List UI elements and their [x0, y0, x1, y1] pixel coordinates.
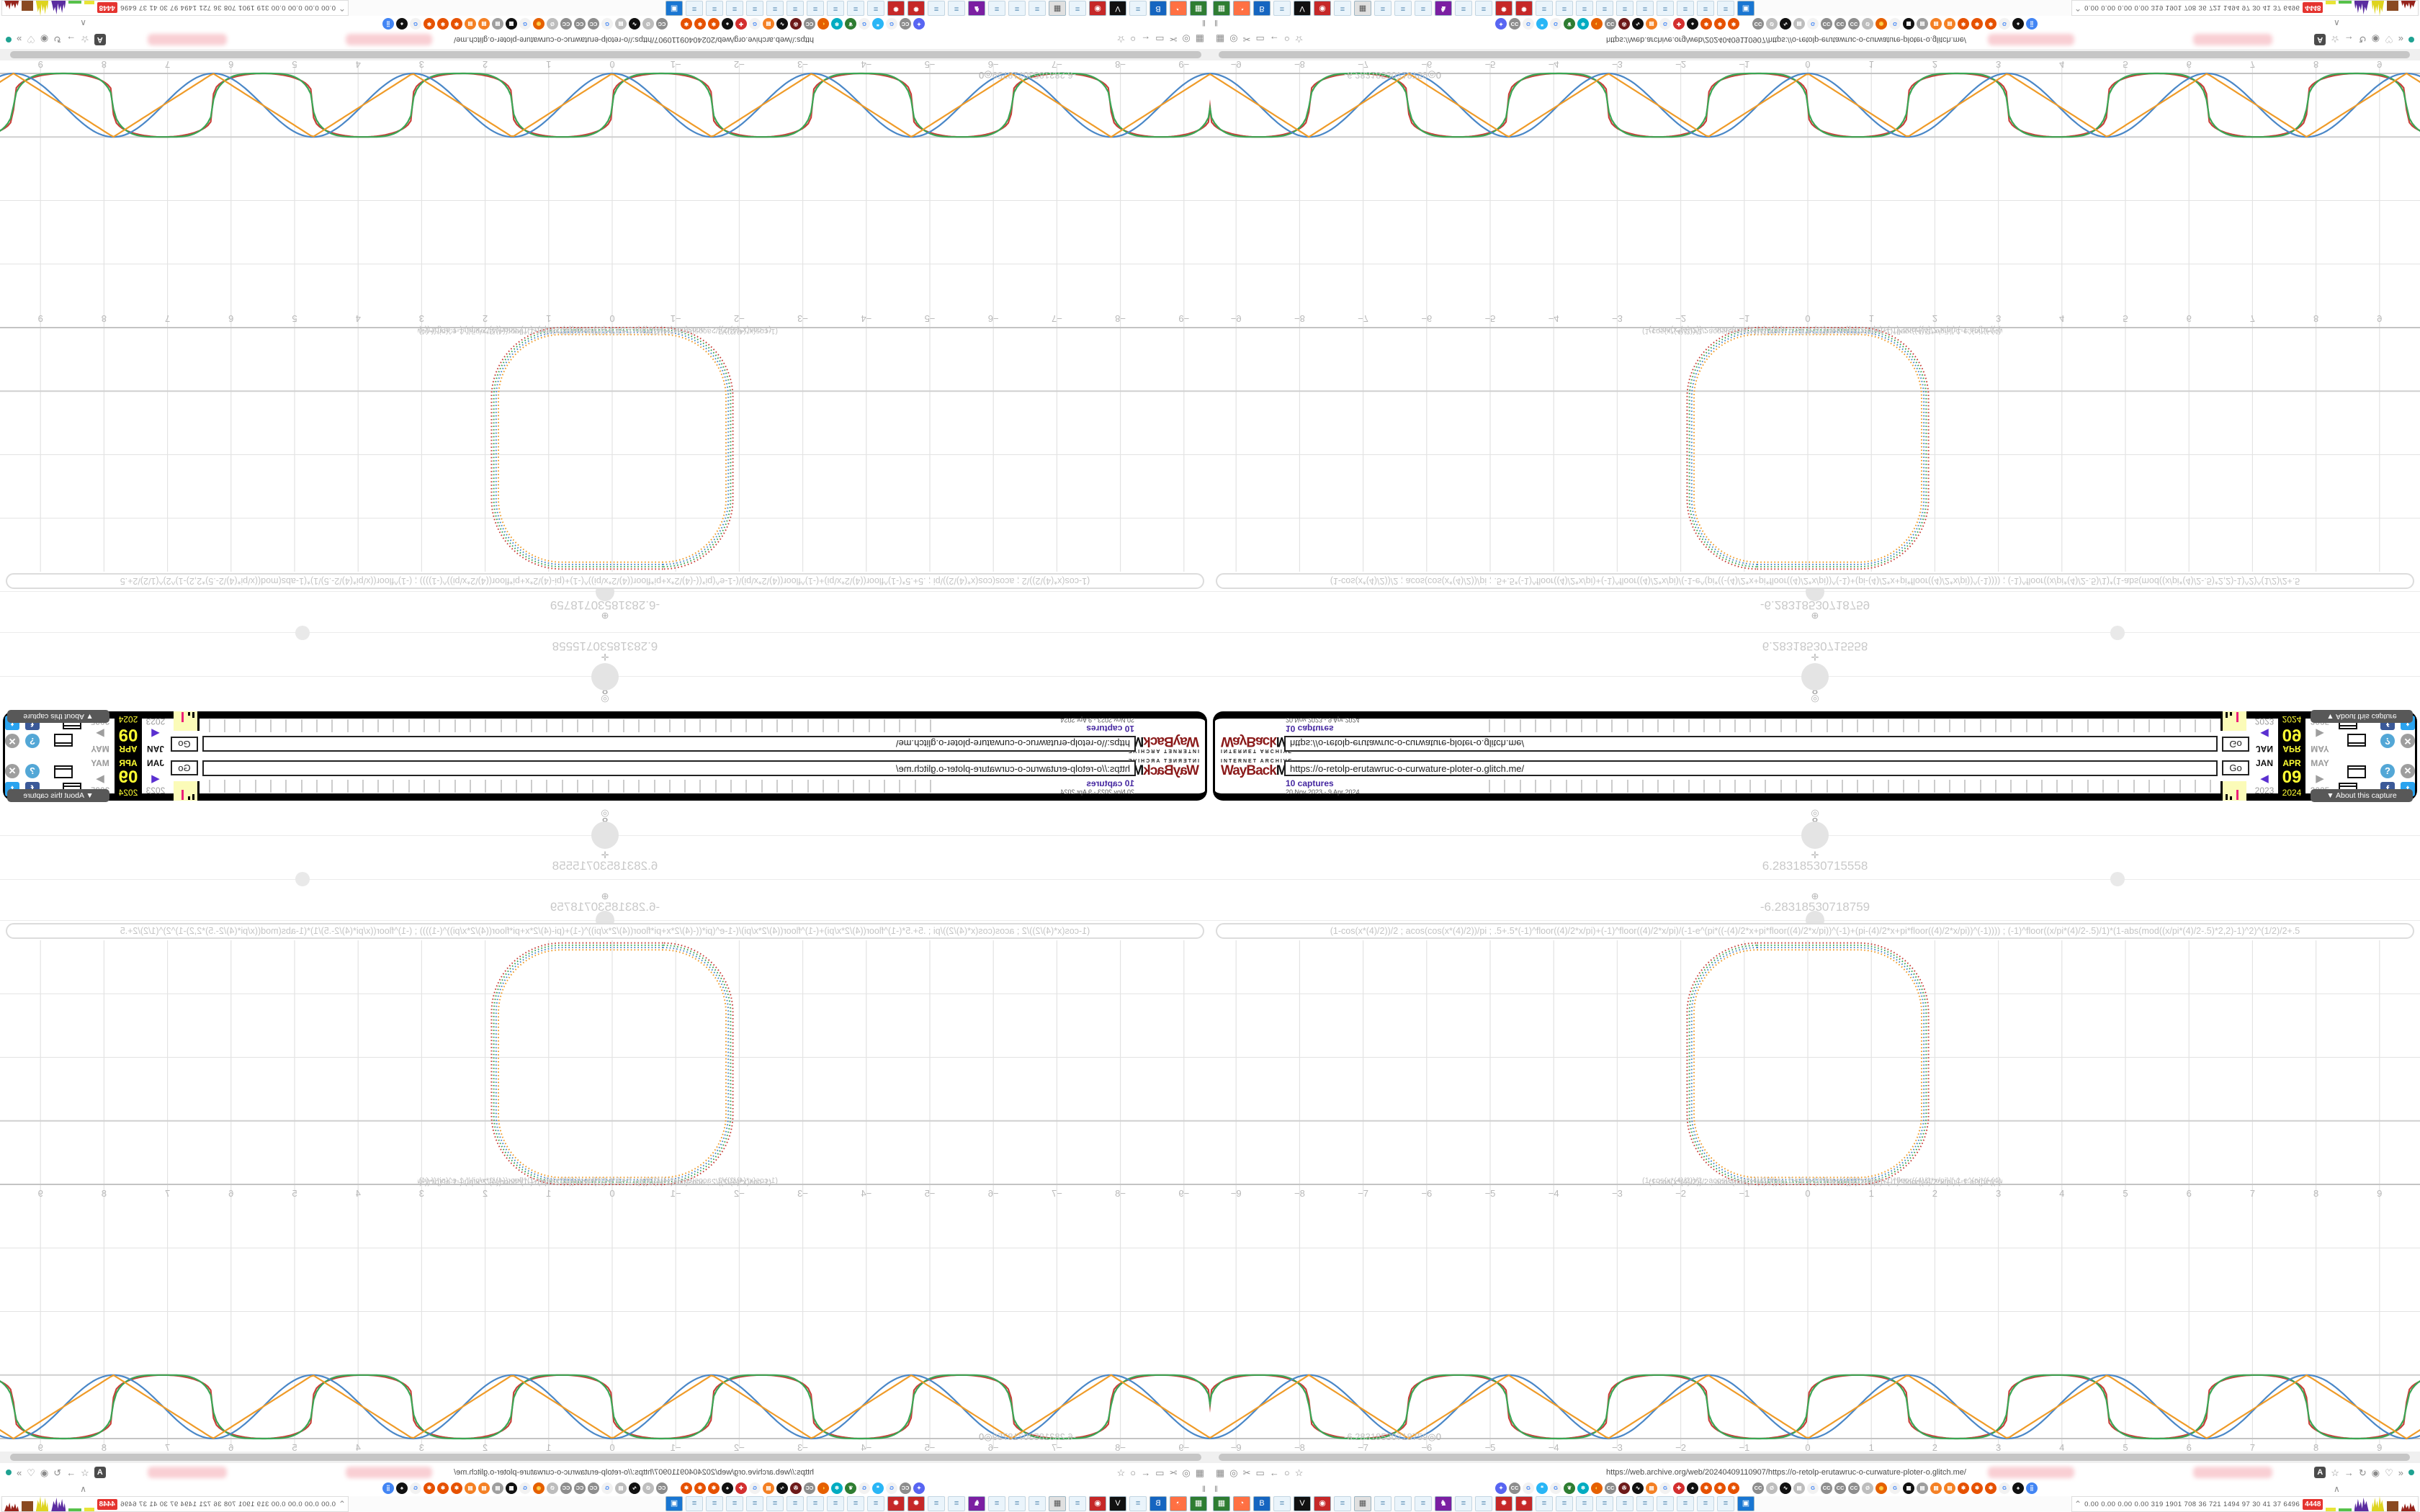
app-tab-icon[interactable]: ▣: [1737, 1496, 1754, 1511]
app-tab-icon[interactable]: ◔: [1233, 1496, 1250, 1511]
favicon[interactable]: Ø: [547, 1482, 558, 1494]
app-tab-icon[interactable]: ◉: [1089, 1496, 1106, 1511]
favicon[interactable]: ◐: [817, 18, 829, 30]
formula-input[interactable]: [1216, 573, 2414, 589]
favicon[interactable]: ◉: [533, 18, 544, 30]
notepad-tab-icon[interactable]: ≡: [1717, 1, 1734, 16]
favicon[interactable]: ❝: [872, 18, 884, 30]
notepad-tab-icon[interactable]: ≡: [726, 1, 743, 16]
app-tab-icon[interactable]: ▣: [665, 1, 683, 16]
address-bar-url[interactable]: https://web.archive.org/web/202404091109…: [454, 1468, 814, 1477]
favicon[interactable]: ♠: [2012, 18, 2024, 30]
close-icon[interactable]: ✕: [5, 764, 19, 778]
favicon[interactable]: ▤: [763, 18, 774, 30]
month-jan[interactable]: JAN: [142, 759, 169, 768]
notepad-tab-icon[interactable]: ≡: [1394, 1, 1412, 16]
favicon[interactable]: ▤: [492, 18, 503, 30]
notepad-tab-icon[interactable]: ≡: [686, 1, 703, 16]
app-tab-icon[interactable]: ✹: [907, 1496, 925, 1511]
favicon[interactable]: ∿: [1632, 1482, 1644, 1494]
notepad-tab-icon[interactable]: ≡: [928, 1, 945, 16]
notepad-tab-icon[interactable]: ≡: [807, 1, 824, 16]
app-tab-icon[interactable]: ✹: [1495, 1, 1512, 16]
favicon[interactable]: Ø: [1862, 1482, 1873, 1494]
favicon[interactable]: ❝: [1536, 1482, 1548, 1494]
favicon[interactable]: ▤: [1930, 18, 1942, 30]
address-bar-url[interactable]: https://web.archive.org/web/202404091109…: [454, 35, 814, 44]
favicon[interactable]: CC: [588, 18, 599, 30]
captures-link[interactable]: 10 captures: [1086, 778, 1134, 788]
favicon[interactable]: ▤: [1930, 1482, 1942, 1494]
app-tab-icon[interactable]: ▦: [1049, 1496, 1066, 1511]
notepad-tab-icon[interactable]: ≡: [726, 1496, 743, 1511]
prev-capture-arrow[interactable]: ◀: [142, 773, 169, 784]
panel-resize-knob[interactable]: [591, 663, 619, 690]
favicon[interactable]: ✦: [1495, 18, 1507, 30]
favicon[interactable]: ▦: [1903, 1482, 1914, 1494]
nav-right-icons[interactable]: A☆→↻◉♡»: [6, 1467, 106, 1479]
notepad-tab-icon[interactable]: ≡: [1636, 1, 1654, 16]
favicon[interactable]: G: [749, 1482, 761, 1494]
favicon[interactable]: ✦: [1495, 1482, 1507, 1494]
favicon[interactable]: ∿: [1780, 18, 1791, 30]
notepad-tab-icon[interactable]: ≡: [1677, 1496, 1694, 1511]
go-button[interactable]: Go: [2222, 760, 2249, 775]
notepad-tab-icon[interactable]: ≡: [1536, 1496, 1553, 1511]
app-tab-icon[interactable]: ♞: [968, 1, 985, 16]
pause-icon[interactable]: ‖: [1202, 1484, 1206, 1494]
app-tab-icon[interactable]: ✹: [1495, 1496, 1512, 1511]
pause-icon[interactable]: ‖: [1214, 18, 1218, 28]
favicon[interactable]: ❦: [1564, 1482, 1575, 1494]
notepad-tab-icon[interactable]: ≡: [1008, 1, 1026, 16]
favicon[interactable]: ❄: [1577, 1482, 1589, 1494]
favicon[interactable]: ♠: [396, 18, 408, 30]
notepad-tab-icon[interactable]: ≡: [706, 1496, 723, 1511]
app-tab-icon[interactable]: V: [1294, 1, 1311, 16]
bookmark-icons[interactable]: ✦CCG❝G❦❄◐CC✇∿▤G✚♠✱✱✱CCØ∿▤GCCCCCCØ◉G▦▤▤▤✱…: [1495, 18, 2038, 30]
app-tab-icon[interactable]: ▦: [1354, 1, 1371, 16]
favicon[interactable]: ✱: [451, 18, 462, 30]
favicon[interactable]: Ø: [642, 1482, 654, 1494]
notepad-tab-icon[interactable]: ≡: [1374, 1, 1391, 16]
plot-canvas[interactable]: −9−9−8−8−7−7−6−6−5−5−4−4−3−3−2−2−1−10011…: [0, 940, 1210, 1453]
notepad-tab-icon[interactable]: ≡: [1475, 1496, 1492, 1511]
notepad-tab-icon[interactable]: ≡: [1334, 1, 1351, 16]
month-may[interactable]: MAY: [86, 759, 115, 768]
favicon[interactable]: ✇: [1618, 18, 1630, 30]
prev-capture-arrow[interactable]: ◀: [142, 728, 169, 739]
favicon[interactable]: CC: [1821, 1482, 1832, 1494]
collapse-icon[interactable]: ∧: [2334, 18, 2340, 28]
nav-right-icons[interactable]: A☆→↻◉♡»: [2314, 33, 2414, 45]
notepad-tab-icon[interactable]: ≡: [1536, 1, 1553, 16]
app-tab-icon[interactable]: B: [1253, 1496, 1270, 1511]
window-icon[interactable]: [2347, 734, 2366, 747]
notepad-tab-icon[interactable]: ≡: [1455, 1, 1472, 16]
notepad-tab-icon[interactable]: ≡: [847, 1, 864, 16]
favicon[interactable]: Ø: [1766, 18, 1778, 30]
positive-extent-value[interactable]: 6.28318530715558: [1762, 859, 1868, 873]
favicon[interactable]: ✱: [423, 1482, 435, 1494]
favicon[interactable]: G: [1999, 18, 2010, 30]
favicon[interactable]: G: [1659, 18, 1671, 30]
expand-icon[interactable]: ⌃: [339, 3, 346, 13]
app-tab-icon[interactable]: ✹: [1515, 1496, 1533, 1511]
taskbar-icons[interactable]: ▦◔B≡V◉≡▦≡≡≡♞≡≡✹✹≡≡≡≡≡≡≡≡≡≡▣: [665, 1496, 1207, 1511]
capture-timeline[interactable]: [201, 778, 931, 794]
favicon[interactable]: ⣿: [2026, 18, 2038, 30]
help-icon[interactable]: ?: [25, 764, 40, 778]
favicon[interactable]: CC: [1509, 1482, 1520, 1494]
notepad-tab-icon[interactable]: ≡: [1028, 1496, 1046, 1511]
axis-origin-marker[interactable]: -6.28318530718759◎0: [1344, 69, 1441, 81]
favicon[interactable]: G: [1889, 18, 1901, 30]
month-may[interactable]: MAY: [86, 744, 115, 753]
favicon[interactable]: G: [886, 18, 897, 30]
favicon[interactable]: CC: [1752, 18, 1764, 30]
month-apr[interactable]: APR: [115, 759, 142, 768]
taskbar-icons[interactable]: ▦◔B≡V◉≡▦≡≡≡♞≡≡✹✹≡≡≡≡≡≡≡≡≡≡▣: [665, 1, 1207, 16]
taskbar-icons[interactable]: ▦◔B≡V◉≡▦≡≡≡♞≡≡✹✹≡≡≡≡≡≡≡≡≡≡▣: [1213, 1496, 1754, 1511]
app-tab-icon[interactable]: ◔: [1233, 1, 1250, 16]
notepad-tab-icon[interactable]: ≡: [827, 1, 844, 16]
favicon[interactable]: G: [601, 18, 613, 30]
window-icon[interactable]: [54, 765, 73, 778]
bookmark-icons[interactable]: ✦CCG❝G❦❄◐CC✇∿▤G✚♠✱✱✱CCØ∿▤GCCCCCCØ◉G▦▤▤▤✱…: [382, 18, 925, 30]
favicon[interactable]: ❦: [845, 1482, 856, 1494]
favicon[interactable]: G: [601, 1482, 613, 1494]
favicon[interactable]: G: [1550, 1482, 1561, 1494]
favicon[interactable]: ✇: [790, 18, 802, 30]
notepad-tab-icon[interactable]: ≡: [1576, 1496, 1593, 1511]
favicon[interactable]: ❄: [831, 18, 843, 30]
favicon[interactable]: ✱: [451, 1482, 462, 1494]
favicon[interactable]: ▤: [465, 18, 476, 30]
favicon[interactable]: ▤: [615, 18, 627, 30]
formula-input[interactable]: [1216, 923, 2414, 939]
notepad-tab-icon[interactable]: ≡: [1596, 1, 1613, 16]
app-tab-icon[interactable]: ♞: [1435, 1496, 1452, 1511]
wayback-url-input[interactable]: [1284, 736, 2218, 752]
app-tab-icon[interactable]: ◉: [1314, 1496, 1331, 1511]
panel-knob[interactable]: [2110, 626, 2125, 640]
notepad-tab-icon[interactable]: ≡: [1129, 1496, 1147, 1511]
captures-link[interactable]: 10 captures: [1286, 724, 1334, 734]
favicon[interactable]: G: [886, 1482, 897, 1494]
notepad-tab-icon[interactable]: ≡: [988, 1496, 1005, 1511]
favicon[interactable]: ✱: [681, 18, 692, 30]
month-apr[interactable]: APR: [2278, 744, 2305, 753]
formula-input[interactable]: [6, 573, 1204, 589]
address-bar-url[interactable]: https://web.archive.org/web/202404091109…: [1606, 1468, 1966, 1477]
favicon[interactable]: G: [1523, 1482, 1534, 1494]
favicon[interactable]: ❦: [845, 18, 856, 30]
timeline-highlight[interactable]: [2220, 781, 2246, 801]
about-this-capture-button[interactable]: ▼ About this capture: [2311, 710, 2413, 723]
favicon[interactable]: ∿: [629, 1482, 640, 1494]
favicon[interactable]: CC: [804, 18, 815, 30]
favicon[interactable]: ♠: [2012, 1482, 2024, 1494]
favicon[interactable]: ▦: [506, 1482, 517, 1494]
app-tab-icon[interactable]: V: [1294, 1496, 1311, 1511]
notepad-tab-icon[interactable]: ≡: [1616, 1, 1633, 16]
notepad-tab-icon[interactable]: ≡: [867, 1496, 884, 1511]
notepad-tab-icon[interactable]: ≡: [1069, 1, 1086, 16]
notepad-tab-icon[interactable]: ≡: [766, 1, 784, 16]
about-this-capture-button[interactable]: ▼ About this capture: [7, 710, 109, 723]
favicon[interactable]: ◉: [1875, 1482, 1887, 1494]
go-button[interactable]: Go: [171, 760, 198, 775]
notepad-tab-icon[interactable]: ≡: [746, 1496, 763, 1511]
favicon[interactable]: ✚: [735, 1482, 747, 1494]
favicon[interactable]: ♠: [1687, 18, 1698, 30]
app-tab-icon[interactable]: ▦: [1213, 1, 1230, 16]
favicon[interactable]: CC: [656, 1482, 668, 1494]
notepad-tab-icon[interactable]: ≡: [686, 1496, 703, 1511]
wayback-url-input[interactable]: [202, 760, 1136, 776]
favicon[interactable]: ✱: [437, 18, 449, 30]
notepad-tab-icon[interactable]: ≡: [1636, 1496, 1654, 1511]
notepad-tab-icon[interactable]: ≡: [1556, 1496, 1573, 1511]
year-2023[interactable]: 2023: [142, 717, 169, 726]
address-bar-url[interactable]: https://web.archive.org/web/202404091109…: [1606, 35, 1966, 44]
page-scrollbar-thumb[interactable]: [10, 51, 1201, 58]
notepad-tab-icon[interactable]: ≡: [766, 1496, 784, 1511]
notepad-tab-icon[interactable]: ≡: [1374, 1496, 1391, 1511]
panel-knob[interactable]: [295, 872, 310, 886]
collapse-icon[interactable]: ∧: [80, 1484, 86, 1494]
bookmark-icons[interactable]: ✦CCG❝G❦❄◐CC✇∿▤G✚♠✱✱✱CCØ∿▤GCCCCCCØ◉G▦▤▤▤✱…: [382, 1482, 925, 1494]
help-icon[interactable]: ?: [25, 734, 40, 748]
favicon[interactable]: ∿: [776, 1482, 788, 1494]
favicon[interactable]: ⣿: [382, 18, 394, 30]
notepad-tab-icon[interactable]: ≡: [746, 1, 763, 16]
timeline-highlight[interactable]: [174, 781, 200, 801]
app-tab-icon[interactable]: ▦: [1354, 1496, 1371, 1511]
panel-knob[interactable]: [295, 626, 310, 640]
notepad-tab-icon[interactable]: ≡: [1273, 1496, 1291, 1511]
favicon[interactable]: Ø: [1862, 18, 1873, 30]
notepad-tab-icon[interactable]: ≡: [786, 1496, 804, 1511]
favicon[interactable]: CC: [1821, 18, 1832, 30]
favicon[interactable]: Ø: [642, 18, 654, 30]
favicon[interactable]: G: [859, 1482, 870, 1494]
nav-left-icons[interactable]: ▦◎✂▭←○☆: [1216, 1467, 1303, 1479]
favicon[interactable]: G: [410, 18, 421, 30]
month-apr[interactable]: APR: [115, 744, 142, 753]
favicon[interactable]: G: [1807, 18, 1819, 30]
notepad-tab-icon[interactable]: ≡: [1657, 1, 1674, 16]
favicon[interactable]: ▦: [1903, 18, 1914, 30]
positive-extent-value[interactable]: 6.28318530715558: [1762, 639, 1868, 653]
notepad-tab-icon[interactable]: ≡: [1273, 1, 1291, 16]
axis-origin-marker[interactable]: -6.28318530718759◎0: [1344, 1431, 1441, 1443]
favicon[interactable]: ▦: [506, 18, 517, 30]
favicon[interactable]: ✱: [1958, 18, 1969, 30]
page-scrollbar-thumb[interactable]: [1219, 1454, 2410, 1461]
captures-link[interactable]: 10 captures: [1086, 724, 1134, 734]
app-tab-icon[interactable]: V: [1109, 1496, 1126, 1511]
favicon[interactable]: ∿: [1780, 1482, 1791, 1494]
favicon[interactable]: CC: [1752, 1482, 1764, 1494]
favicon[interactable]: ✱: [1728, 18, 1739, 30]
favicon[interactable]: ♠: [1687, 1482, 1698, 1494]
notepad-tab-icon[interactable]: ≡: [1697, 1496, 1714, 1511]
app-tab-icon[interactable]: ◔: [1170, 1496, 1187, 1511]
favicon[interactable]: ▤: [763, 1482, 774, 1494]
favicon[interactable]: ✱: [1700, 1482, 1712, 1494]
notepad-tab-icon[interactable]: ≡: [1717, 1496, 1734, 1511]
app-tab-icon[interactable]: ▣: [1737, 1, 1754, 16]
favicon[interactable]: ✚: [735, 18, 747, 30]
year-2023[interactable]: 2023: [2251, 786, 2278, 795]
favicon[interactable]: ✱: [1714, 18, 1726, 30]
favicon[interactable]: G: [519, 18, 531, 30]
axis-origin-marker[interactable]: -6.28318530718759◎0: [979, 69, 1076, 81]
app-tab-icon[interactable]: ◉: [1089, 1, 1106, 16]
plot-canvas[interactable]: −9−9−8−8−7−7−6−6−5−5−4−4−3−3−2−2−1−10011…: [0, 59, 1210, 572]
favicon[interactable]: ✱: [437, 1482, 449, 1494]
favicon[interactable]: ◐: [817, 1482, 829, 1494]
notepad-tab-icon[interactable]: ≡: [928, 1496, 945, 1511]
captures-link[interactable]: 10 captures: [1286, 778, 1334, 788]
notepad-tab-icon[interactable]: ≡: [1415, 1496, 1432, 1511]
axis-origin-marker[interactable]: -6.28318530718759◎0: [979, 1431, 1076, 1443]
favicon[interactable]: Ø: [1766, 1482, 1778, 1494]
expand-icon[interactable]: ⌃: [2074, 3, 2081, 13]
favicon[interactable]: ⣿: [2026, 1482, 2038, 1494]
notepad-tab-icon[interactable]: ≡: [1129, 1, 1147, 16]
plot-canvas[interactable]: −9−9−8−8−7−7−6−6−5−5−4−4−3−3−2−2−1−10011…: [1210, 940, 2420, 1453]
favicon[interactable]: CC: [1509, 18, 1520, 30]
nav-left-icons[interactable]: ▦◎✂▭←○☆: [1117, 33, 1204, 45]
notepad-tab-icon[interactable]: ≡: [1455, 1496, 1472, 1511]
favicon[interactable]: ✱: [423, 18, 435, 30]
month-may[interactable]: MAY: [2305, 759, 2334, 768]
notepad-tab-icon[interactable]: ≡: [706, 1, 723, 16]
year-2024[interactable]: 2024: [115, 715, 142, 724]
favicon[interactable]: ▤: [492, 1482, 503, 1494]
favicon[interactable]: ✱: [1985, 18, 1996, 30]
notepad-tab-icon[interactable]: ≡: [948, 1496, 965, 1511]
year-2024[interactable]: 2024: [2278, 788, 2305, 797]
notepad-tab-icon[interactable]: ≡: [988, 1, 1005, 16]
notepad-tab-icon[interactable]: ≡: [867, 1, 884, 16]
favicon[interactable]: ✦: [913, 1482, 925, 1494]
app-tab-icon[interactable]: ▦: [1190, 1, 1207, 16]
year-2023[interactable]: 2023: [142, 786, 169, 795]
favicon[interactable]: ▤: [1793, 1482, 1805, 1494]
notepad-tab-icon[interactable]: ≡: [1616, 1496, 1633, 1511]
notepad-tab-icon[interactable]: ≡: [1334, 1496, 1351, 1511]
notepad-tab-icon[interactable]: ≡: [807, 1496, 824, 1511]
app-tab-icon[interactable]: ▦: [1049, 1, 1066, 16]
favicon[interactable]: G: [1889, 1482, 1901, 1494]
nav-left-icons[interactable]: ▦◎✂▭←○☆: [1117, 1467, 1204, 1479]
app-tab-icon[interactable]: V: [1109, 1, 1126, 16]
favicon[interactable]: ▤: [478, 1482, 490, 1494]
notepad-tab-icon[interactable]: ≡: [827, 1496, 844, 1511]
favicon[interactable]: CC: [1834, 1482, 1846, 1494]
month-jan[interactable]: JAN: [2251, 759, 2278, 768]
panel-resize-knob[interactable]: [591, 822, 619, 849]
notepad-tab-icon[interactable]: ≡: [1677, 1, 1694, 16]
favicon[interactable]: CC: [900, 18, 911, 30]
app-tab-icon[interactable]: ◔: [1170, 1, 1187, 16]
favicon[interactable]: ▤: [478, 18, 490, 30]
favicon[interactable]: G: [1659, 1482, 1671, 1494]
favicon[interactable]: CC: [656, 18, 668, 30]
app-tab-icon[interactable]: ✹: [887, 1496, 905, 1511]
window-icon[interactable]: [54, 734, 73, 747]
collapse-icon[interactable]: ∧: [80, 18, 86, 28]
favicon[interactable]: ∿: [629, 18, 640, 30]
favicon[interactable]: G: [1550, 18, 1561, 30]
collapse-icon[interactable]: ∧: [2334, 1484, 2340, 1494]
nav-right-icons[interactable]: A☆→↻◉♡»: [6, 33, 106, 45]
notepad-tab-icon[interactable]: ≡: [1556, 1, 1573, 16]
notepad-tab-icon[interactable]: ≡: [847, 1496, 864, 1511]
notepad-tab-icon[interactable]: ≡: [1596, 1496, 1613, 1511]
favicon[interactable]: ❝: [1536, 18, 1548, 30]
app-tab-icon[interactable]: ▦: [1190, 1496, 1207, 1511]
timeline-highlight[interactable]: [2220, 711, 2246, 731]
notepad-tab-icon[interactable]: ≡: [1069, 1496, 1086, 1511]
favicon[interactable]: CC: [1605, 18, 1616, 30]
favicon[interactable]: G: [519, 1482, 531, 1494]
favicon[interactable]: ▤: [1917, 1482, 1928, 1494]
favicon[interactable]: G: [1999, 1482, 2010, 1494]
favicon[interactable]: ♠: [722, 1482, 733, 1494]
go-button[interactable]: Go: [2222, 737, 2249, 752]
panel-resize-knob[interactable]: [1801, 663, 1829, 690]
about-this-capture-button[interactable]: ▼ About this capture: [7, 789, 109, 802]
app-tab-icon[interactable]: ▣: [665, 1496, 683, 1511]
favicon[interactable]: ❄: [831, 1482, 843, 1494]
favicon[interactable]: ❦: [1564, 18, 1575, 30]
close-icon[interactable]: ✕: [2401, 764, 2415, 778]
app-tab-icon[interactable]: B: [1149, 1496, 1167, 1511]
favicon[interactable]: ✱: [1714, 1482, 1726, 1494]
favicon[interactable]: CC: [1605, 1482, 1616, 1494]
favicon[interactable]: ✦: [913, 18, 925, 30]
favicon[interactable]: G: [1807, 1482, 1819, 1494]
notepad-tab-icon[interactable]: ≡: [1576, 1, 1593, 16]
favicon[interactable]: CC: [900, 1482, 911, 1494]
close-icon[interactable]: ✕: [2401, 734, 2415, 748]
app-tab-icon[interactable]: ✹: [907, 1, 925, 16]
expand-icon[interactable]: ⌃: [339, 1499, 346, 1509]
favicon[interactable]: ✱: [1728, 1482, 1739, 1494]
wayback-url-input[interactable]: [1284, 760, 2218, 776]
nav-left-icons[interactable]: ▦◎✂▭←○☆: [1216, 33, 1303, 45]
favicon[interactable]: ▤: [1944, 1482, 1955, 1494]
favicon[interactable]: ▤: [465, 1482, 476, 1494]
favicon[interactable]: ▤: [1646, 1482, 1657, 1494]
favicon[interactable]: ∿: [1632, 18, 1644, 30]
prev-capture-arrow[interactable]: ◀: [2251, 773, 2278, 784]
favicon[interactable]: ✱: [1958, 1482, 1969, 1494]
capture-timeline[interactable]: [1489, 718, 2219, 734]
pause-icon[interactable]: ‖: [1214, 1484, 1218, 1494]
month-jan[interactable]: JAN: [2251, 744, 2278, 753]
app-tab-icon[interactable]: ▦: [1213, 1496, 1230, 1511]
favicon[interactable]: ✚: [1673, 18, 1685, 30]
window-icon[interactable]: [2347, 765, 2366, 778]
bookmark-icons[interactable]: ✦CCG❝G❦❄◐CC✇∿▤G✚♠✱✱✱CCØ∿▤GCCCCCCØ◉G▦▤▤▤✱…: [1495, 1482, 2038, 1494]
favicon[interactable]: ♠: [396, 1482, 408, 1494]
